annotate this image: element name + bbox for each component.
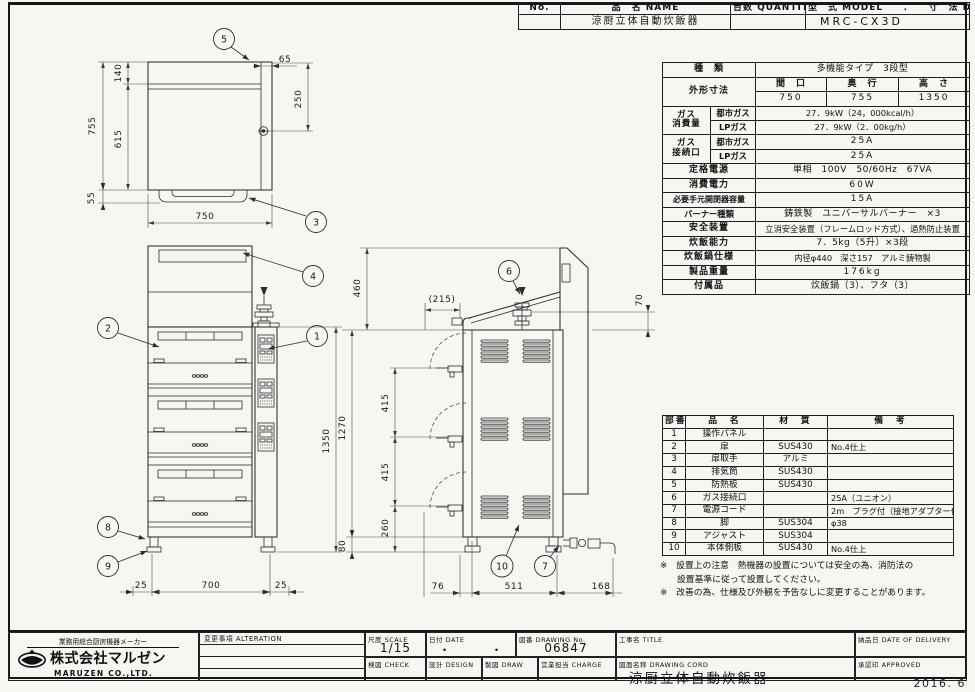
svg-text:2: 2 <box>105 324 111 335</box>
svg-text:5: 5 <box>221 35 227 46</box>
spec-city-gas-consumption: 27．9kW（24，000kcal/h） <box>756 106 970 120</box>
maruzen-logo-icon <box>17 649 47 668</box>
parts-name: 本体側板 <box>686 543 764 556</box>
spec-lp-gas-consumption: 27．9kW（2．00kg/h） <box>756 120 970 134</box>
parts-row: 3 扉取手 アルミ <box>663 454 954 467</box>
spec-accessory-value: 炊飯鍋（3）、フタ（3） <box>756 280 970 295</box>
dim-460: 460 <box>353 279 363 298</box>
parts-no: 4 <box>663 466 686 479</box>
spec-burner-value: 鋳鉄製 ユニバーサルバーナー ×3 <box>756 207 970 222</box>
parts-no: 2 <box>663 441 686 454</box>
spec-gas-consumption-label: ガス 消費量 <box>663 106 711 135</box>
parts-note: φ38 <box>828 517 954 530</box>
balloon-9: 9 <box>98 551 148 577</box>
parts-no: 6 <box>663 492 686 505</box>
gas-inlet-front-icon <box>255 287 273 327</box>
parts-no: 5 <box>663 479 686 492</box>
parts-note <box>828 454 954 467</box>
dim-250: 250 <box>294 90 304 109</box>
parts-note <box>828 466 954 479</box>
parts-no: 10 <box>663 543 686 556</box>
spec-breaker-value: 15A <box>756 193 970 208</box>
gas-inlet-side-icon <box>513 287 531 330</box>
dim-415a: 415 <box>381 394 391 413</box>
draw-label: 製図 DRAW <box>485 659 523 669</box>
title-block: 業務用総合厨房機器メーカー 株式会社マルゼン MARUZEN CO.,LTD. … <box>8 630 967 679</box>
spec-breaker-label: 必要手元開閉器容量 <box>663 193 756 208</box>
balloon-3: 3 <box>249 198 327 233</box>
balloon-7: 7 <box>535 546 560 577</box>
spec-burner-label: バーナー種類 <box>663 207 756 222</box>
charge-label: 営業担当 CHARGE <box>541 659 602 669</box>
balloon-8: 8 <box>98 517 146 540</box>
drawing-no-value: 06847 <box>517 641 615 655</box>
control-panel-column <box>253 323 279 537</box>
power-cord <box>563 538 615 554</box>
spec-lp-gas-connection: 25A <box>756 149 970 164</box>
parts-no: 8 <box>663 517 686 530</box>
date-cell: 日付 DATE ・ ・ <box>426 632 516 657</box>
spec-safety-value: 立消安全装置（フレームロッド方式）、過熱防止装置 <box>756 222 970 237</box>
dim-168: 168 <box>592 582 611 592</box>
parts-material <box>764 492 828 505</box>
spec-gas-connection-label-2: 接続口 <box>665 149 708 159</box>
parts-row: 6 ガス接続口 25A（ユニオン） <box>663 492 954 505</box>
spec-city-gas-connection: 25A <box>756 135 970 150</box>
parts-material: SUS304 <box>764 530 828 543</box>
delivery-label: 納品日 DATE OF DELIVERY <box>858 634 951 644</box>
drawing-name-cell: 図面名称 DRAWING CORD 涼厨立体自動炊飯器 <box>616 657 855 681</box>
parts-note: 25A（ユニオン） <box>828 492 954 505</box>
parts-row: 4 排気筒 SUS430 <box>663 466 954 479</box>
parts-no: 7 <box>663 505 686 518</box>
parts-name: アジャスト <box>686 530 764 543</box>
spec-gas-connection-label: ガス 接続口 <box>663 135 711 164</box>
dim-140: 140 <box>114 64 124 83</box>
spec-consumption-value: 60W <box>756 178 970 193</box>
dim-215: (215) <box>429 295 456 305</box>
note-line: 設置基準に従って設置してください。 <box>660 574 966 588</box>
header-no-label: No. <box>519 3 561 15</box>
svg-text:6: 6 <box>506 267 512 278</box>
dim-415b: 415 <box>381 463 391 482</box>
parts-material: SUS304 <box>764 517 828 530</box>
parts-row: 9 アジャスト SUS304 <box>663 530 954 543</box>
parts-no: 9 <box>663 530 686 543</box>
header-no-value <box>519 15 561 30</box>
balloon-4: 4 <box>243 253 324 287</box>
spec-lp-gas-label: LPガス <box>711 120 756 134</box>
spec-height-value: 1350 <box>899 92 970 107</box>
dim-260: 260 <box>381 519 391 538</box>
spec-pot-value: 内径φ440 深さ157 アルミ鋳物製 <box>756 251 970 266</box>
maker-block: 業務用総合厨房機器メーカー 株式会社マルゼン MARUZEN CO.,LTD. <box>8 632 199 681</box>
design-cell: 設計 DESIGN <box>426 657 482 681</box>
header-name-label: 品 名 NAME <box>561 3 731 15</box>
control-keypad <box>258 335 274 363</box>
parts-material: SUS430 <box>764 466 828 479</box>
control-keypad <box>258 423 274 451</box>
dim-615: 615 <box>114 130 124 149</box>
parts-row: 2 扉 SUS430 No.4仕上 <box>663 441 954 454</box>
spec-city-gas-label: 都市ガス <box>711 106 756 120</box>
parts-note <box>828 530 954 543</box>
spec-gas-consumption-label-2: 消費量 <box>665 120 708 130</box>
dim-700: 700 <box>202 581 221 591</box>
parts-header-no: 部番 <box>663 416 686 429</box>
charge-cell: 営業担当 CHARGE <box>538 657 616 681</box>
scale-cell: 尺度 SCALE 1/15 <box>365 632 426 657</box>
parts-name: 操作パネル <box>686 428 764 441</box>
parts-table: 部番 品 名 材 質 備 考 1 操作パネル 2 扉 SUS430 No.4仕上… <box>662 415 954 556</box>
spec-capacity-label: 炊飯能力 <box>663 236 756 251</box>
parts-material <box>764 428 828 441</box>
dim-76: 76 <box>432 582 444 592</box>
header-model-value: MRC-CX3D <box>806 15 970 30</box>
date-value: ・ ・ <box>427 641 515 658</box>
parts-name: 防熱板 <box>686 479 764 492</box>
note-line: ※ 設置上の注意 熱機器の設置については安全の為、消防法の <box>660 560 966 574</box>
caution-notes: ※ 設置上の注意 熱機器の設置については安全の為、消防法の 設置基準に従って設置… <box>660 560 966 601</box>
project-title-cell: 工事名 TITLE <box>616 632 855 657</box>
spec-depth-value: 755 <box>827 92 899 107</box>
year-stamp: 2016. 6 <box>900 677 966 690</box>
spec-capacity-value: 7．5kg（5升）×3段 <box>756 236 970 251</box>
parts-header-name: 品 名 <box>686 416 764 429</box>
parts-material <box>764 505 828 518</box>
spec-weight-label: 製品重量 <box>663 265 756 280</box>
parts-header-material: 材 質 <box>764 416 828 429</box>
control-keypad <box>258 379 274 407</box>
parts-note: 2m プラグ付（接地アダプター付） <box>828 505 954 518</box>
gas-valve-top-icon <box>258 127 269 136</box>
dim-70: 70 <box>635 294 645 306</box>
check-label: 検図 CHECK <box>368 659 409 669</box>
spec-kind-value: 多機能タイプ 3段型 <box>756 63 970 78</box>
parts-note <box>828 428 954 441</box>
dim-1350: 1350 <box>322 429 332 454</box>
parts-row: 5 防熱板 SUS430 <box>663 479 954 492</box>
check-cell: 検図 CHECK <box>365 657 426 681</box>
dim-80: 80 <box>338 540 348 552</box>
balloon-5: 5 <box>214 29 250 61</box>
approved-label: 承認印 APPROVED <box>858 659 921 669</box>
parts-material: SUS430 <box>764 543 828 556</box>
front-view: 1350 25 700 25 4 2 <box>98 246 343 596</box>
note-line: ※ 改善の為、仕様及び外観を予告なしに変更することがあります。 <box>660 587 966 601</box>
svg-text:4: 4 <box>310 272 316 283</box>
parts-name: ガス接続口 <box>686 492 764 505</box>
louver-vents <box>481 340 550 518</box>
drawing-sheet: 755 140 615 55 750 65 250 5 <box>0 0 975 692</box>
parts-name: 脚 <box>686 517 764 530</box>
svg-text:1: 1 <box>314 332 320 343</box>
dim-755: 755 <box>88 117 98 136</box>
parts-row: 10 本体側板 SUS430 No.4仕上 <box>663 543 954 556</box>
spec-consumption-label: 消費電力 <box>663 178 756 193</box>
spec-kind-label: 種 類 <box>663 63 756 78</box>
dim-55: 55 <box>87 192 97 204</box>
balloon-6: 6 <box>499 261 521 295</box>
spec-table: 種 類 多機能タイプ 3段型 外形寸法 間 口 奥 行 高 さ 750 755 … <box>662 62 970 295</box>
legs-front <box>147 537 275 552</box>
header-name-value: 涼厨立体自動炊飯器 <box>561 15 731 30</box>
spec-lp-gas-conn-label: LPガス <box>711 149 756 164</box>
side-view: 460 1270 80 415 415 260 (215) 70 <box>338 248 655 597</box>
parts-material: SUS430 <box>764 441 828 454</box>
spec-safety-label: 安全装置 <box>663 222 756 237</box>
header-model-dim-label: 型 式 MODEL ． 寸 法 DIMENSION <box>806 3 970 15</box>
parts-name: 扉 <box>686 441 764 454</box>
spec-pot-label: 炊飯鍋仕様 <box>663 251 756 266</box>
spec-city-gas-conn-label: 都市ガス <box>711 135 756 150</box>
draw-cell: 製図 DRAW <box>482 657 538 681</box>
parts-name: 扉取手 <box>686 454 764 467</box>
spec-power-value: 単相 100V 50/60Hz 67VA <box>756 164 970 179</box>
spec-dims-label: 外形寸法 <box>663 77 756 106</box>
parts-note: No.4仕上 <box>828 441 954 454</box>
parts-name: 電源コード <box>686 505 764 518</box>
delivery-cell: 納品日 DATE OF DELIVERY <box>855 632 967 657</box>
spec-depth-label: 奥 行 <box>827 77 899 92</box>
dim-65: 65 <box>279 55 291 65</box>
svg-text:10: 10 <box>496 562 508 573</box>
dim-25-right: 25 <box>275 581 287 591</box>
parts-no: 3 <box>663 454 686 467</box>
parts-material: アルミ <box>764 454 828 467</box>
parts-material: SUS430 <box>764 479 828 492</box>
dim-25-left: 25 <box>135 581 147 591</box>
drawing-no-cell: 図番 DRAWING No. 06847 <box>516 632 616 657</box>
svg-text:7: 7 <box>542 562 548 573</box>
company-name-en: MARUZEN CO.,LTD. <box>9 669 198 678</box>
drawing-name-value: 涼厨立体自動炊飯器 <box>629 667 854 687</box>
top-view: 755 140 615 55 750 65 250 5 <box>87 29 327 233</box>
alteration-row <box>199 668 365 681</box>
parts-row: 7 電源コード 2m プラグ付（接地アダプター付） <box>663 505 954 518</box>
parts-note: No.4仕上 <box>828 543 954 556</box>
scale-value: 1/15 <box>366 641 425 655</box>
door-swing-arcs <box>430 333 466 516</box>
dim-511: 511 <box>505 582 524 592</box>
parts-no: 1 <box>663 428 686 441</box>
svg-text:3: 3 <box>313 218 319 229</box>
header-qty-value <box>731 15 806 30</box>
design-label: 設計 DESIGN <box>429 659 474 669</box>
parts-name: 排気筒 <box>686 466 764 479</box>
spec-width-value: 750 <box>756 92 827 107</box>
header-table: No. 品 名 NAME 台数 QUANTITY 型 式 MODEL ． 寸 法… <box>518 2 970 30</box>
project-title-label: 工事名 TITLE <box>619 634 663 644</box>
header-qty-label: 台数 QUANTITY <box>731 3 806 15</box>
tier-doors <box>148 327 252 522</box>
spec-weight-value: 176kg <box>756 265 970 280</box>
spec-accessory-label: 付属品 <box>663 280 756 295</box>
svg-text:9: 9 <box>105 562 111 573</box>
parts-header-note: 備 考 <box>828 416 954 429</box>
spec-height-label: 高 さ <box>899 77 970 92</box>
company-name-jp: 株式会社マルゼン <box>50 648 166 668</box>
spec-power-label: 定格電源 <box>663 164 756 179</box>
parts-note <box>828 479 954 492</box>
parts-row: 1 操作パネル <box>663 428 954 441</box>
balloon-10: 10 <box>491 525 519 577</box>
dim-750: 750 <box>196 212 215 222</box>
svg-text:8: 8 <box>105 523 111 534</box>
balloon-2: 2 <box>98 318 160 348</box>
parts-row: 8 脚 SUS304 φ38 <box>663 517 954 530</box>
dim-1270: 1270 <box>338 416 348 441</box>
spec-width-label: 間 口 <box>756 77 827 92</box>
